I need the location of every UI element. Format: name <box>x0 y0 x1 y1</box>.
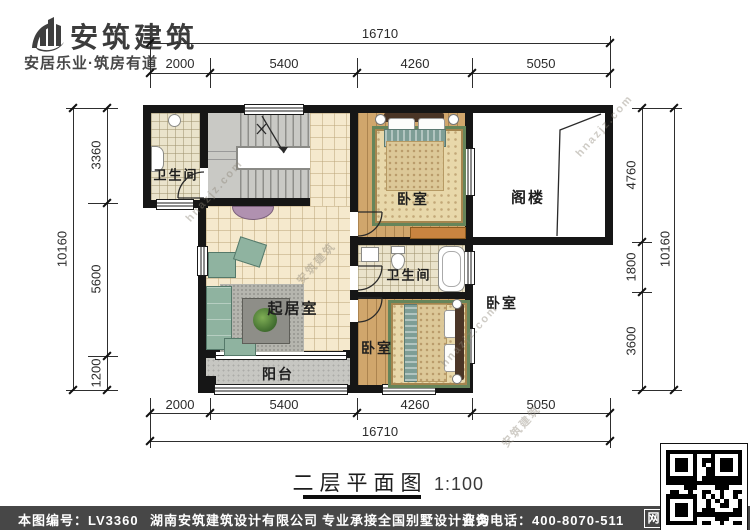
room-label: 阳台 <box>262 364 294 384</box>
wall <box>143 105 151 208</box>
dim-label: 5050 <box>527 56 556 71</box>
room-label: 卧室 <box>361 338 393 358</box>
dim-label: 1800 <box>624 253 639 282</box>
dim-label: 5400 <box>270 56 299 71</box>
dim-label: 5400 <box>270 397 299 412</box>
washbasin-icon <box>361 247 379 262</box>
room-label: 卧室 <box>397 189 429 209</box>
window <box>156 199 194 210</box>
wall <box>465 105 473 152</box>
wall <box>200 105 208 168</box>
dim-label: 1200 <box>89 359 104 388</box>
room-living-corridor <box>310 113 350 206</box>
wall <box>143 105 478 113</box>
brand-logo-icon <box>26 12 70 54</box>
dim-label: 4260 <box>401 397 430 412</box>
window <box>197 246 208 276</box>
dim-label: 2000 <box>166 397 195 412</box>
dim-label: 4760 <box>624 161 639 190</box>
room-label: 卫生间 <box>153 165 198 184</box>
balcony-railing <box>214 384 348 395</box>
wardrobe <box>410 227 466 239</box>
dim-right-total: 10160 <box>658 231 673 267</box>
qr-code-grid <box>666 450 742 526</box>
sheet-scale: 1:100 <box>434 474 484 495</box>
room-label: 阁楼 <box>511 187 545 208</box>
dim-label: 3600 <box>624 327 639 356</box>
window <box>244 104 304 115</box>
wall <box>455 237 613 245</box>
wall <box>200 198 310 206</box>
brand-name: 安筑建筑 <box>70 16 198 56</box>
wall <box>350 105 358 212</box>
qr-code <box>660 443 748 530</box>
sheet-title: 二层平面图 <box>293 467 428 497</box>
brand-slogan: 安居乐业·筑房有道 <box>24 52 158 73</box>
company-name: 湖南安筑建筑设计有限公司 <box>150 510 318 529</box>
drawing-number: 本图编号：LV3360 <box>18 510 139 529</box>
phone-text: 咨询电话：400-8070-511 <box>462 510 624 529</box>
dim-label: 3360 <box>89 141 104 170</box>
window <box>464 251 475 285</box>
dim-label: 5600 <box>89 265 104 294</box>
drawing-sheet: 安筑建筑 安居乐业·筑房有道 16710 2000 5400 4260 5050… <box>0 0 750 530</box>
mirror-icon <box>168 114 181 127</box>
room-attic <box>480 113 605 237</box>
dim-label: 4260 <box>401 56 430 71</box>
wall <box>472 105 613 113</box>
dim-label: 2000 <box>166 56 195 71</box>
bathtub-icon <box>438 246 465 292</box>
dim-top-total: 16710 <box>362 26 398 41</box>
dim-left-total: 10160 <box>55 231 70 267</box>
wall <box>198 203 206 358</box>
dim-bottom-total: 16710 <box>362 424 398 439</box>
wall <box>350 292 473 299</box>
title-underline <box>303 495 421 499</box>
wall <box>465 192 473 253</box>
armchair-icon <box>208 252 236 278</box>
room-label: 起居室 <box>267 298 318 319</box>
room-label: 卫生间 <box>386 265 431 284</box>
watermark: 安筑建筑 <box>498 401 545 450</box>
